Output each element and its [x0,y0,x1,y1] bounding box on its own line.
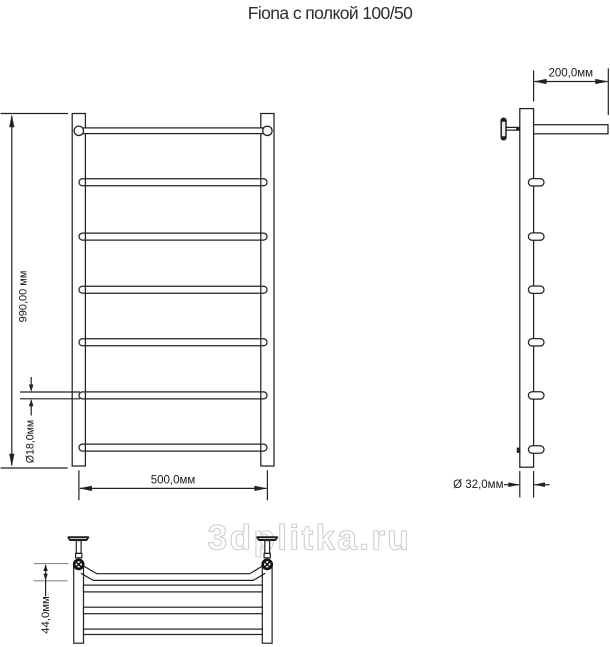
svg-text:Ø 32,0мм: Ø 32,0мм [453,479,503,491]
svg-text:200,0мм: 200,0мм [549,67,594,79]
svg-text:Fiona с полкой 100/50: Fiona с полкой 100/50 [248,3,413,23]
svg-text:990,00 мм: 990,00 мм [18,271,30,323]
svg-text:44,0мм: 44,0мм [40,596,52,634]
svg-text:Ø18,0мм: Ø18,0мм [25,420,37,463]
svg-text:3dplitka.ru: 3dplitka.ru [208,519,411,558]
svg-text:500,0мм: 500,0мм [151,475,196,487]
